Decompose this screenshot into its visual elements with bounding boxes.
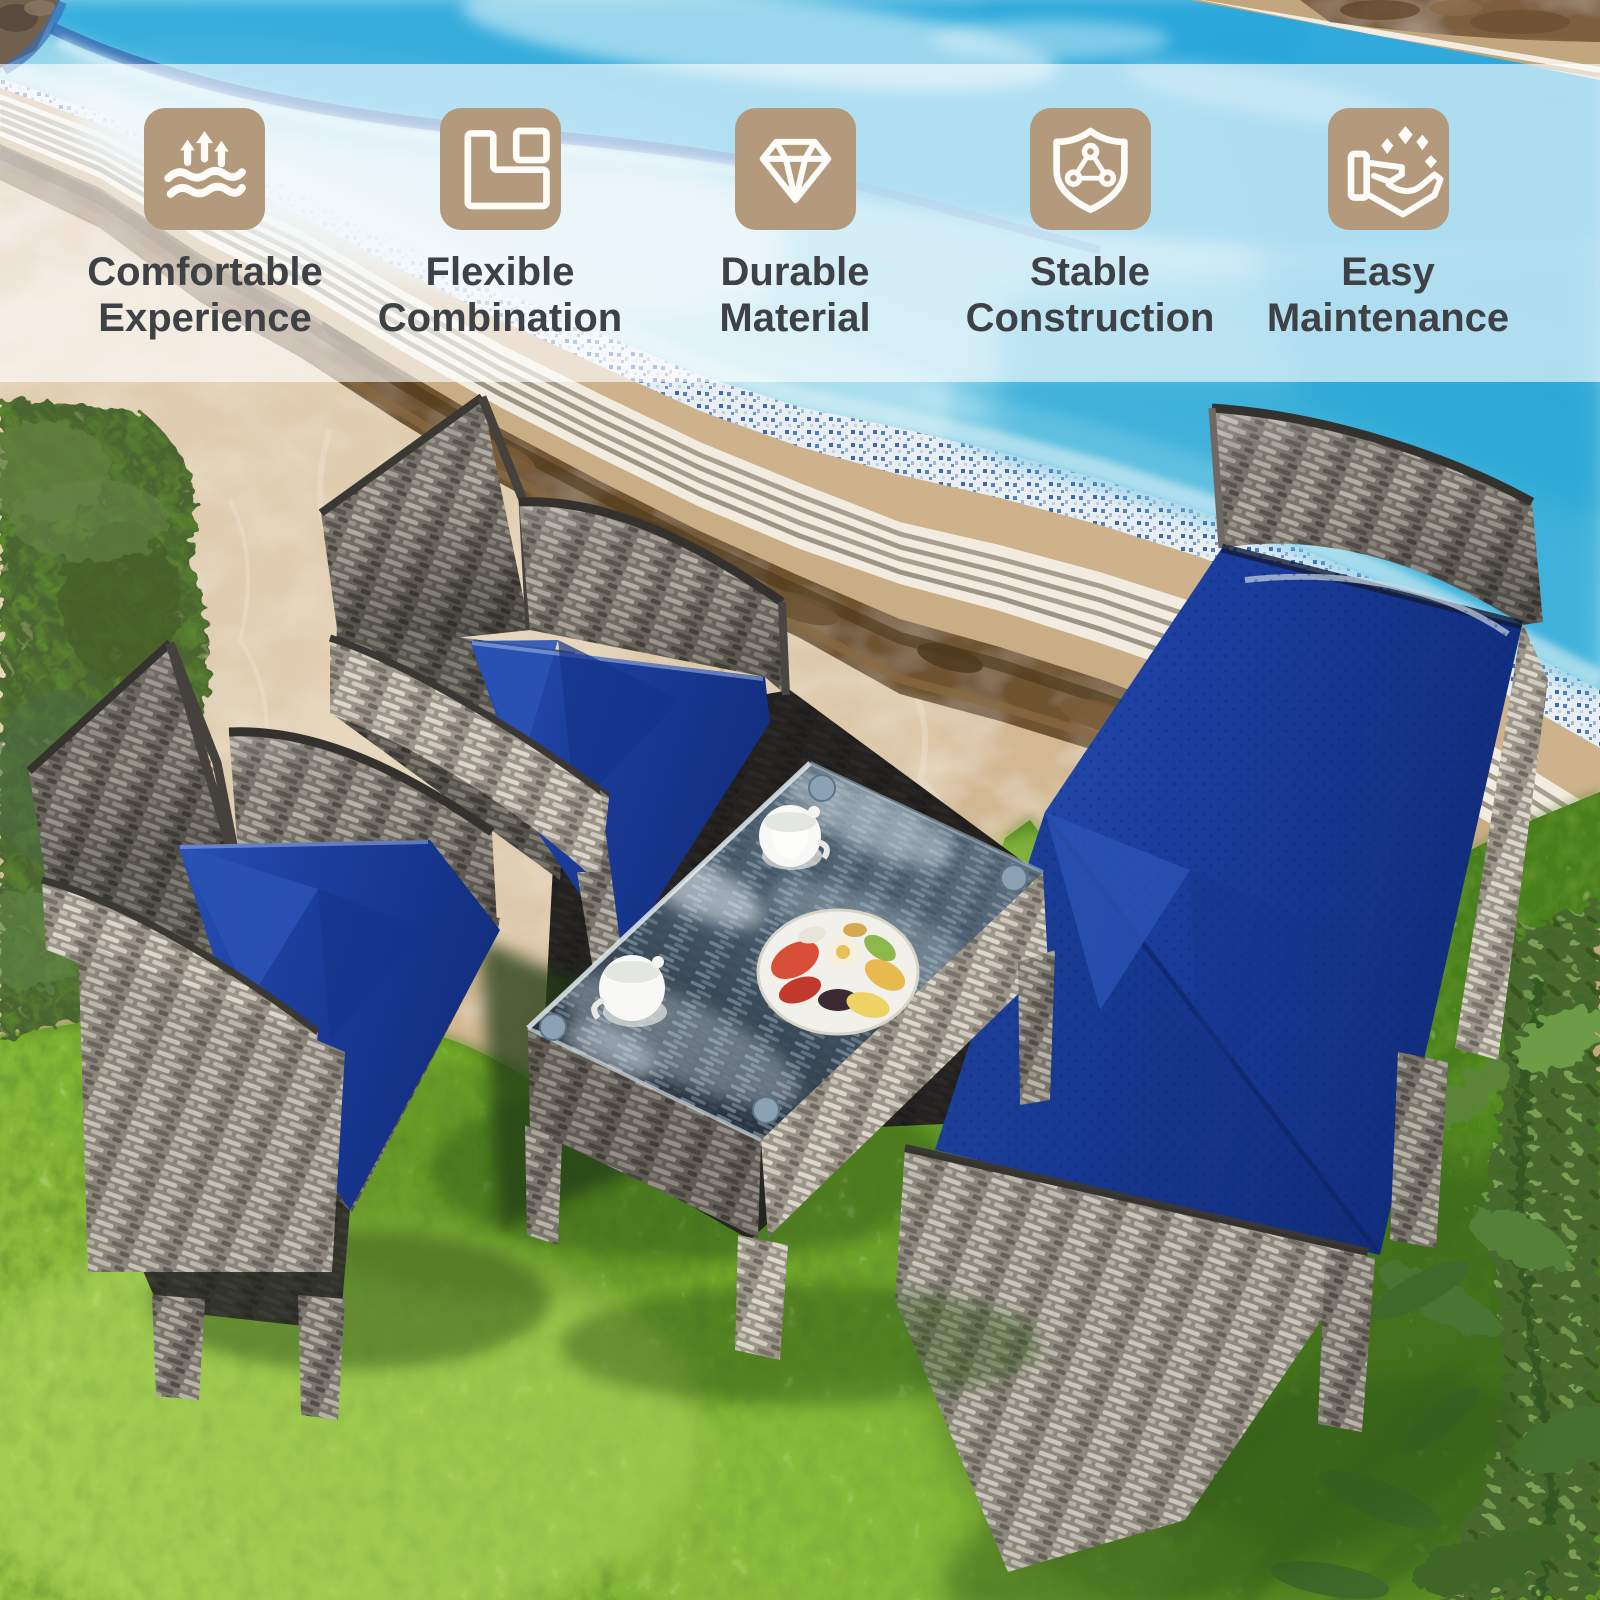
- svg-text:Experience: Experience: [98, 296, 311, 340]
- svg-text:Construction: Construction: [966, 296, 1215, 340]
- svg-text:Flexible: Flexible: [426, 250, 575, 294]
- svg-text:Comfortable: Comfortable: [87, 250, 323, 294]
- svg-text:Durable: Durable: [721, 250, 870, 294]
- svg-text:Stable: Stable: [1030, 250, 1150, 294]
- svg-text:Maintenance: Maintenance: [1267, 296, 1509, 340]
- svg-text:Combination: Combination: [378, 296, 622, 340]
- svg-text:Material: Material: [719, 296, 870, 340]
- svg-text:Easy: Easy: [1341, 250, 1435, 294]
